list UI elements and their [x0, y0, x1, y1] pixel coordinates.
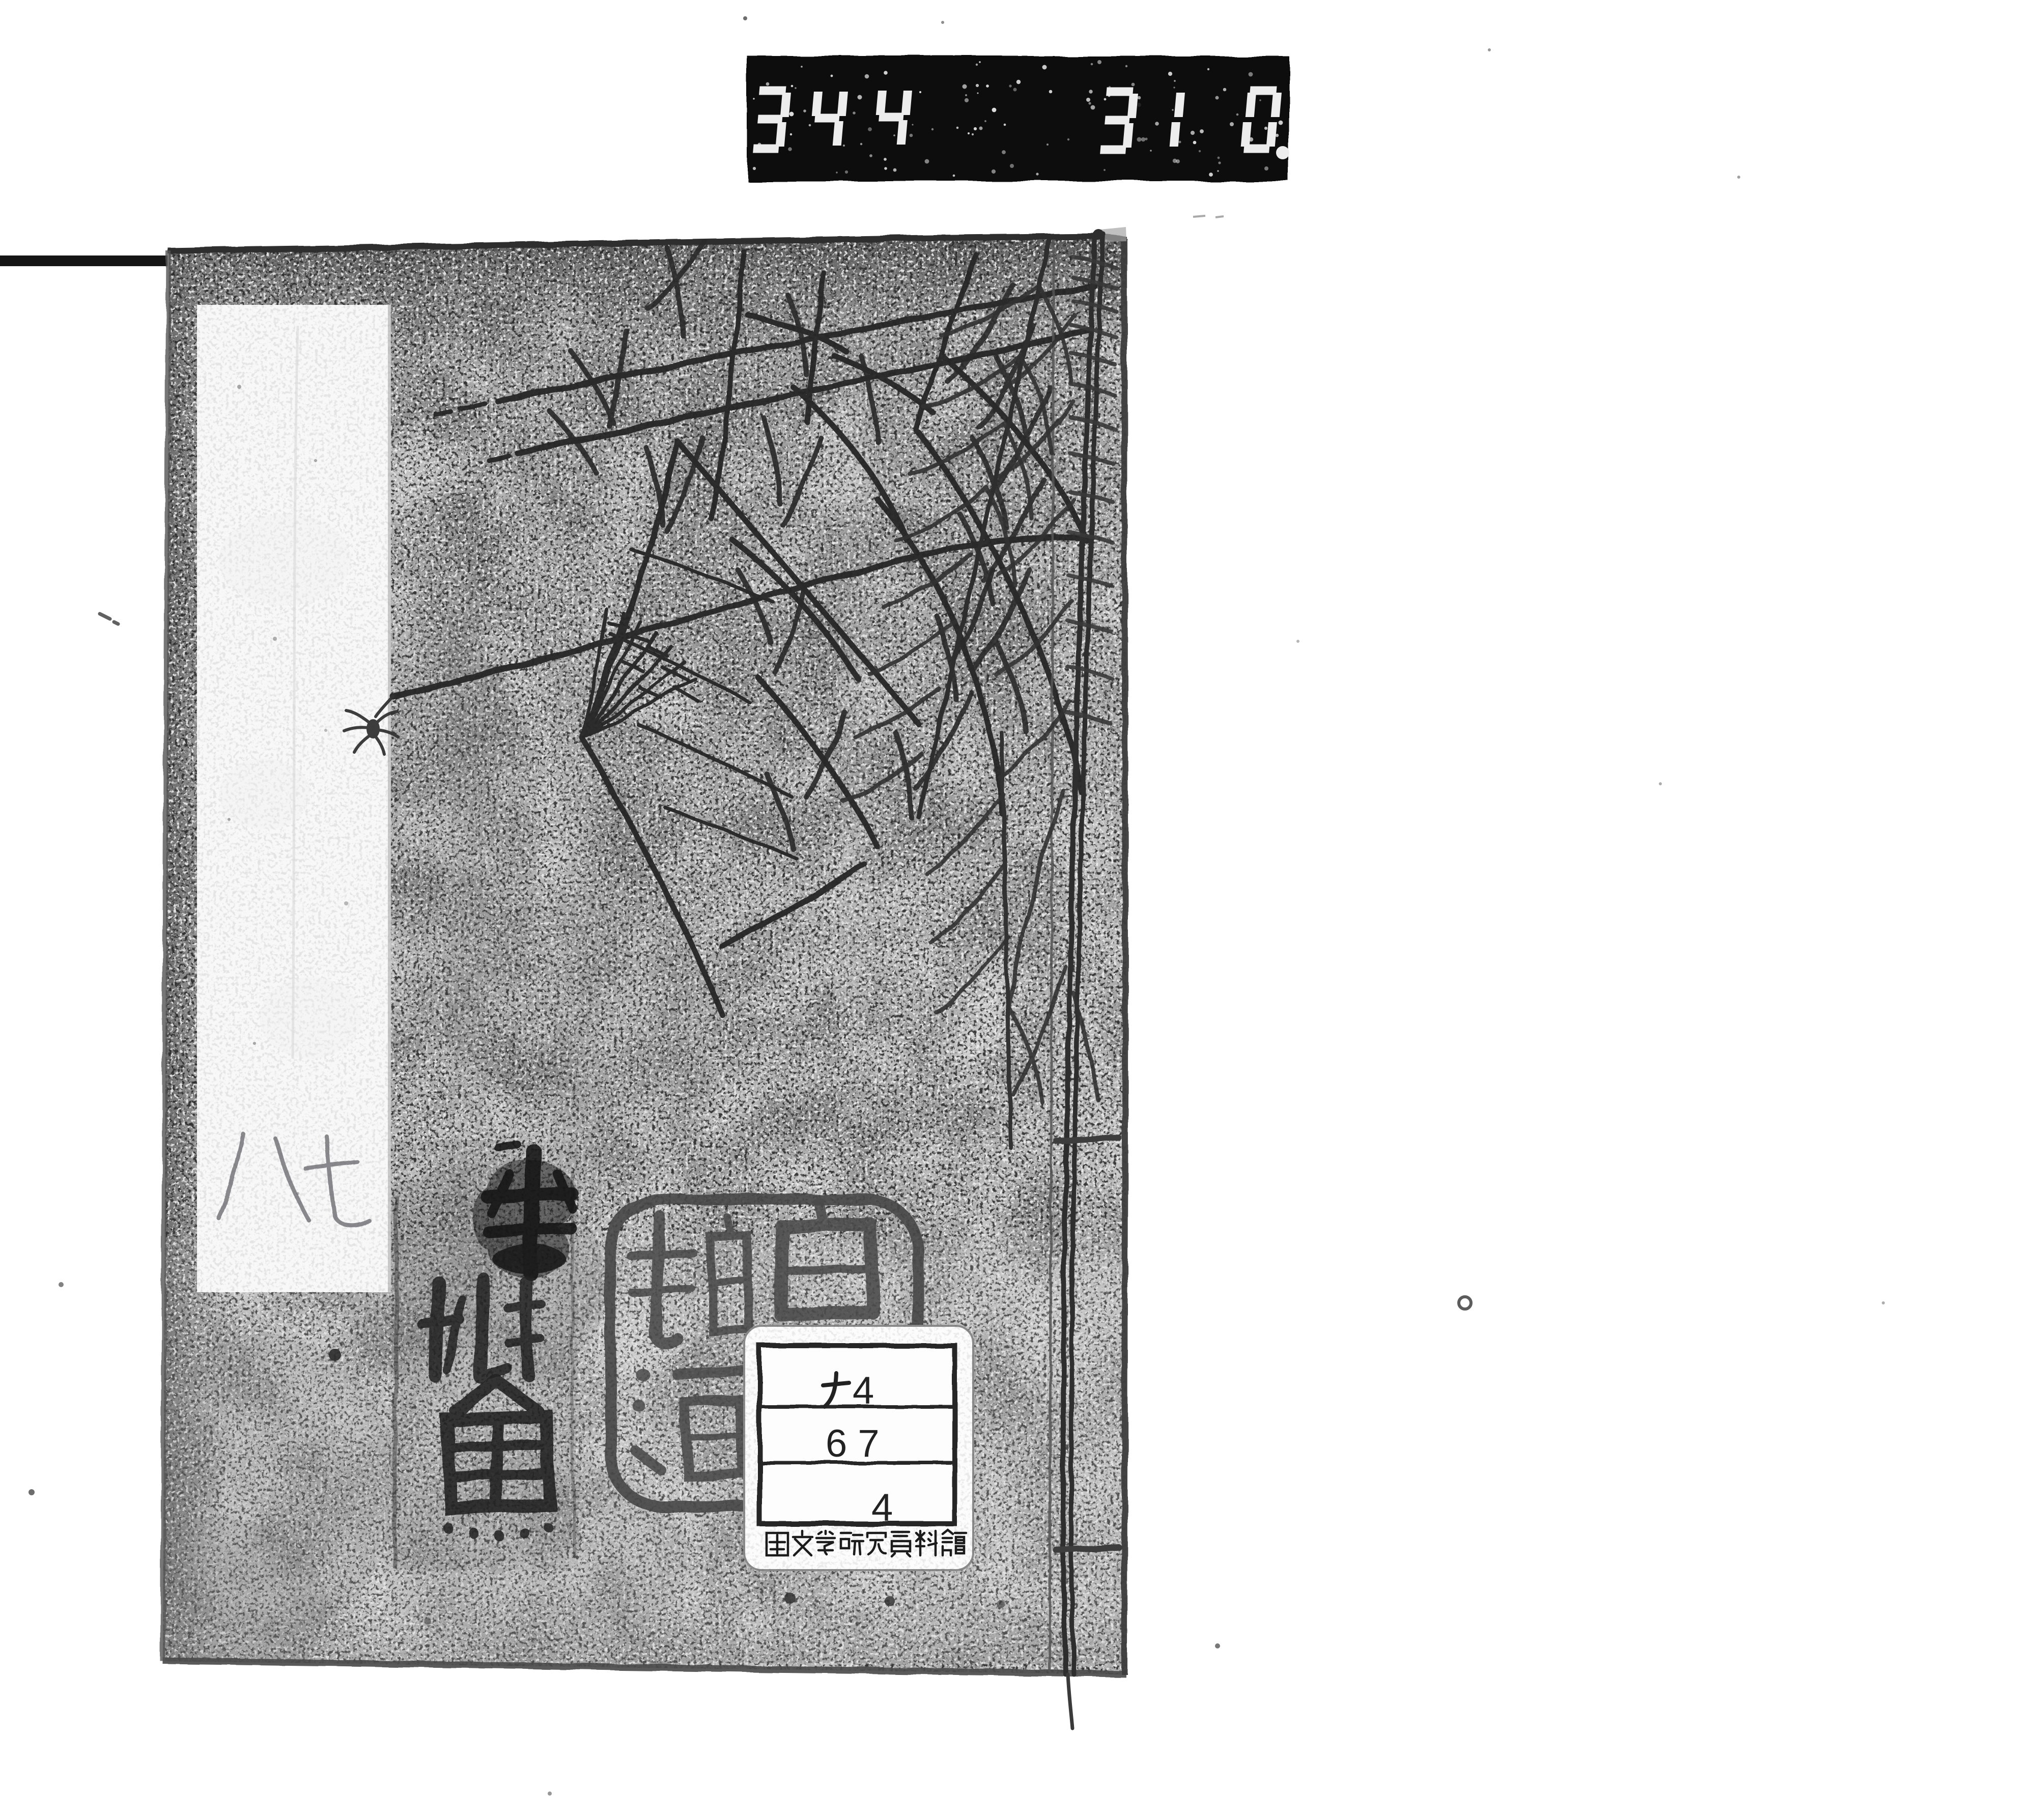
svg-text:4: 4: [853, 1369, 874, 1412]
svg-text:4: 4: [871, 1486, 893, 1529]
svg-text:6 7: 6 7: [826, 1422, 880, 1465]
